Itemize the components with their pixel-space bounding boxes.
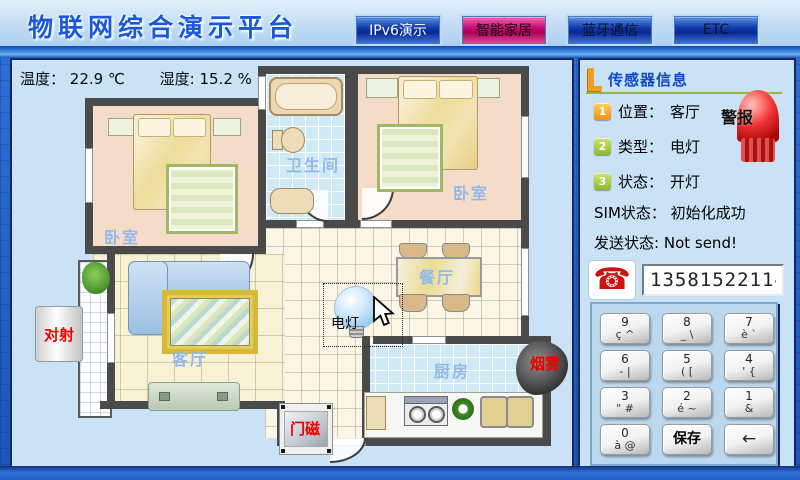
state-label: 状态： (618, 171, 663, 192)
phone-icon: ☎ (593, 265, 630, 295)
window (85, 148, 93, 203)
room-label-bathroom: 卫生间 (286, 152, 340, 176)
send-status: 发送状态: Not send! (594, 232, 737, 253)
sensor-smoke[interactable]: 烟雾 (516, 341, 568, 395)
header: 物联网综合演示平台 IPv6演示 智能家居 蓝牙通信 ETC (0, 0, 800, 46)
humidity-value: 15.2 (199, 70, 232, 88)
key-4[interactable]: 4 ' { (724, 350, 774, 381)
temperature-value: 22.9 (70, 70, 103, 88)
tab-smart-home[interactable]: 智能家居 (462, 16, 546, 44)
type-value: 电灯 (670, 136, 700, 157)
room-label-living: 客厅 (172, 346, 208, 370)
info-state: 3 状态： 开灯 (594, 171, 700, 192)
key-0[interactable]: 0 à @ (600, 424, 650, 455)
sensor-smoke-label: 烟雾 (530, 353, 560, 374)
bathroom-sink (270, 188, 314, 214)
kitchen-sink (506, 396, 534, 428)
sim-status-value: 初始化成功 (671, 204, 746, 222)
tab-ipv6[interactable]: IPv6演示 (356, 16, 440, 44)
room-label-bedroom-right: 卧室 (453, 180, 489, 204)
sensor-door-magnet-label: 门磁 (290, 418, 320, 439)
window (107, 313, 115, 363)
nav-tabs: IPv6演示 智能家居 蓝牙通信 ETC (356, 16, 786, 46)
wall (345, 66, 358, 228)
room-label-dining: 餐厅 (419, 264, 455, 288)
key-3[interactable]: 3 " # (600, 387, 650, 418)
tv-cabinet (148, 382, 240, 411)
keypad: 9 ç ^ 8 _ \ 7 è ` 6 - | 5 ( [ 4 ' { 3 " … (590, 302, 778, 466)
toilet (281, 127, 305, 153)
stove (404, 396, 448, 426)
item-number-badge: 2 (594, 138, 611, 155)
tab-etc[interactable]: ETC (674, 16, 758, 44)
alarm-label: 警报 (721, 104, 753, 128)
wreath (452, 398, 474, 420)
key-9[interactable]: 9 ç ^ (600, 313, 650, 344)
key-6[interactable]: 6 - | (600, 350, 650, 381)
rug (377, 124, 443, 192)
room-label-kitchen: 厨房 (434, 358, 470, 382)
item-number-badge: 1 (594, 103, 611, 120)
door-arc (330, 438, 366, 463)
mouse-cursor (370, 296, 396, 328)
key-2[interactable]: 2 é ~ (662, 387, 712, 418)
wall (85, 98, 258, 106)
info-location: 1 位置： 客厅 (594, 101, 700, 122)
kitchen-sink (480, 396, 508, 428)
temperature-label: 温度： (20, 70, 65, 88)
rug (166, 164, 238, 234)
send-status-label: 发送状态: (594, 234, 659, 252)
phone-number-input[interactable] (642, 264, 784, 296)
environment-readout: 温度： 22.9 ℃ 湿度: 15.2 % (20, 68, 252, 89)
info-type: 2 类型： 电灯 (594, 136, 700, 157)
sensor-beam-label: 对射 (44, 324, 74, 345)
section-marker-icon (588, 68, 602, 91)
phone-icon-box: ☎ (588, 260, 636, 300)
fridge (366, 396, 386, 430)
window (258, 76, 266, 110)
bathtub (269, 77, 343, 116)
temperature-unit: ℃ (108, 70, 125, 88)
dining-chair (399, 294, 427, 312)
sidebar-title: 传感器信息 (608, 69, 688, 90)
door-gap (360, 220, 392, 228)
save-button[interactable]: 保存 (662, 424, 712, 455)
plant (82, 262, 110, 294)
backspace-key[interactable]: ← (724, 424, 774, 455)
door-gap (296, 220, 324, 228)
alarm-base (741, 138, 775, 162)
header-divider (0, 46, 800, 58)
alarm-beacon: 警报 (735, 90, 781, 166)
dining-chair (442, 294, 470, 312)
app-title: 物联网综合演示平台 (28, 8, 298, 44)
door-gap (412, 336, 446, 344)
nightstand (213, 118, 241, 136)
state-value: 开灯 (670, 171, 700, 192)
location-label: 位置： (618, 101, 663, 122)
sensor-info-panel: 传感器信息 警报 1 位置： 客厅 2 类型： 电灯 3 状态： 开灯 SIM状… (578, 58, 796, 470)
sensor-beam[interactable]: 对射 (35, 306, 83, 362)
living-rug (162, 290, 258, 354)
location-value: 客厅 (670, 101, 700, 122)
floorplan-panel: 温度： 22.9 ℃ 湿度: 15.2 % (10, 58, 574, 470)
nightstand (108, 118, 134, 136)
wall (362, 438, 551, 446)
sensor-lamp[interactable]: 电灯 (323, 283, 403, 347)
tab-bluetooth[interactable]: 蓝牙通信 (568, 16, 652, 44)
key-5[interactable]: 5 ( [ (662, 350, 712, 381)
key-1[interactable]: 1 & (724, 387, 774, 418)
sidebar-title-row: 传感器信息 (588, 68, 688, 91)
wall (258, 66, 528, 74)
item-number-badge: 3 (594, 173, 611, 190)
type-label: 类型： (618, 136, 663, 157)
window (521, 248, 529, 316)
bottom-band (0, 466, 800, 480)
humidity-label: 湿度: (160, 70, 195, 88)
key-7[interactable]: 7 è ` (724, 313, 774, 344)
sensor-door-magnet[interactable]: 门磁 (279, 403, 333, 455)
room-label-bedroom-left: 卧室 (104, 224, 140, 248)
humidity-unit: % (238, 70, 252, 88)
send-status-value: Not send! (664, 234, 737, 252)
sim-status: SIM状态： 初始化成功 (594, 202, 746, 223)
sim-status-label: SIM状态： (594, 204, 666, 222)
window (521, 116, 529, 178)
sensor-lamp-label: 电灯 (331, 313, 359, 333)
nightstand (366, 78, 398, 98)
key-8[interactable]: 8 _ \ (662, 313, 712, 344)
